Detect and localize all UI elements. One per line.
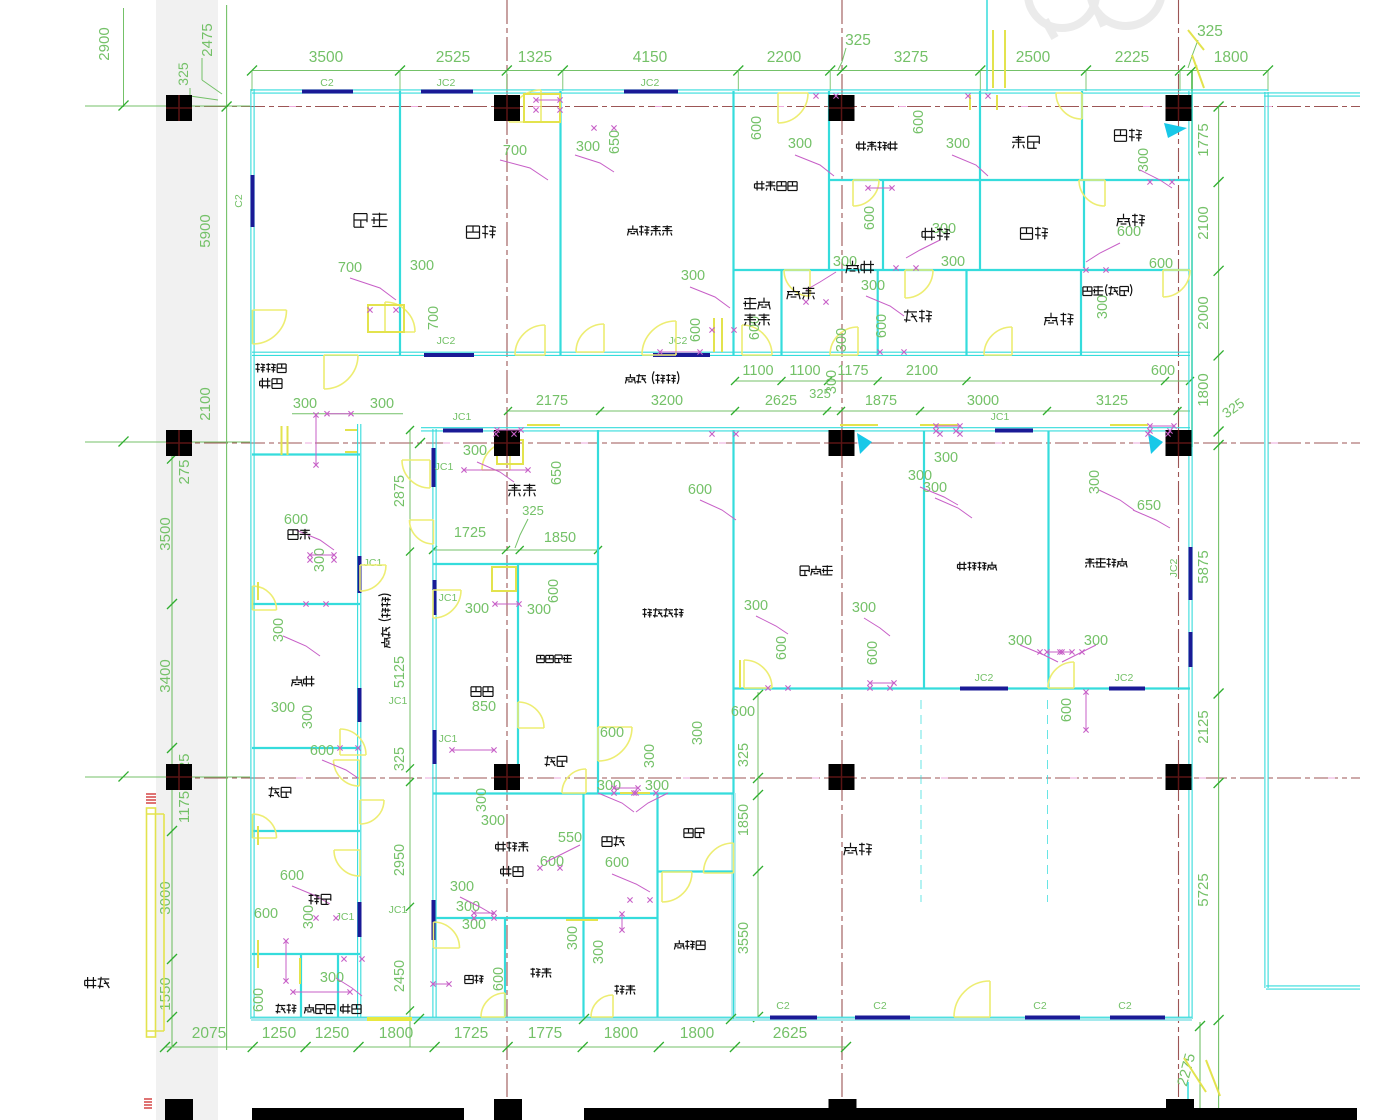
svg-text:1775: 1775 xyxy=(1195,123,1212,156)
svg-text:300: 300 xyxy=(450,879,474,895)
svg-text:1550: 1550 xyxy=(157,977,174,1010)
svg-text:2125: 2125 xyxy=(1195,710,1212,743)
svg-text:1325: 1325 xyxy=(518,49,552,66)
svg-text:300: 300 xyxy=(565,926,581,950)
svg-text:600: 600 xyxy=(749,116,765,140)
svg-text:1800: 1800 xyxy=(604,1025,639,1042)
svg-text:1800: 1800 xyxy=(1214,49,1249,66)
svg-text:2100: 2100 xyxy=(1195,206,1212,239)
svg-text:600: 600 xyxy=(546,579,562,603)
svg-text:1850: 1850 xyxy=(736,804,752,836)
svg-text:300: 300 xyxy=(941,254,965,270)
svg-text:C2: C2 xyxy=(233,194,245,208)
svg-text:300: 300 xyxy=(312,548,328,572)
svg-text:300: 300 xyxy=(744,598,768,614)
svg-text:JC2: JC2 xyxy=(641,77,660,89)
svg-text:3500: 3500 xyxy=(309,49,344,66)
svg-text:2625: 2625 xyxy=(765,393,797,409)
svg-text:600: 600 xyxy=(688,318,704,342)
svg-text:300: 300 xyxy=(370,396,394,412)
svg-text:5725: 5725 xyxy=(1195,873,1212,906)
svg-text:300: 300 xyxy=(462,917,486,933)
svg-text:300: 300 xyxy=(527,602,551,618)
svg-text:1725: 1725 xyxy=(454,525,486,541)
svg-text:JC2: JC2 xyxy=(1115,672,1134,684)
svg-text:325: 325 xyxy=(845,32,871,49)
svg-text:1725: 1725 xyxy=(454,1025,488,1042)
svg-text:JC1: JC1 xyxy=(453,411,472,423)
svg-text:300: 300 xyxy=(852,600,876,616)
svg-text:300: 300 xyxy=(946,136,970,152)
svg-text:1800: 1800 xyxy=(1195,373,1212,406)
svg-text:300: 300 xyxy=(271,618,287,642)
svg-text:300: 300 xyxy=(1084,633,1108,649)
svg-text:700: 700 xyxy=(426,306,442,330)
svg-text:600: 600 xyxy=(254,906,278,922)
svg-text:325: 325 xyxy=(1197,23,1223,40)
svg-text:C2: C2 xyxy=(1033,1000,1047,1012)
svg-text:2475: 2475 xyxy=(199,23,216,56)
svg-text:600: 600 xyxy=(688,482,712,498)
svg-text:300: 300 xyxy=(1095,295,1111,319)
svg-text:JC2: JC2 xyxy=(1168,559,1180,578)
svg-text:2450: 2450 xyxy=(392,960,408,992)
svg-text:600: 600 xyxy=(1149,256,1173,272)
svg-text:300: 300 xyxy=(642,744,658,768)
svg-text:JC1: JC1 xyxy=(389,695,408,707)
svg-text:300: 300 xyxy=(293,396,317,412)
svg-text:JC1: JC1 xyxy=(991,411,1010,423)
svg-text:600: 600 xyxy=(874,314,890,338)
svg-text:850: 850 xyxy=(472,699,496,715)
svg-text:300: 300 xyxy=(474,788,490,812)
svg-text:2875: 2875 xyxy=(392,475,408,507)
svg-text:300: 300 xyxy=(597,778,621,794)
svg-text:2525: 2525 xyxy=(436,49,470,66)
svg-text:300: 300 xyxy=(932,221,956,237)
svg-text:JC2: JC2 xyxy=(975,672,994,684)
svg-text:1850: 1850 xyxy=(544,530,576,546)
svg-text:1175: 1175 xyxy=(176,791,193,823)
svg-text:1100: 1100 xyxy=(789,363,820,379)
svg-text:300: 300 xyxy=(410,258,434,274)
svg-text:1800: 1800 xyxy=(680,1025,715,1042)
svg-text:JC1: JC1 xyxy=(439,733,458,745)
svg-text:300: 300 xyxy=(824,370,840,394)
svg-text:3275: 3275 xyxy=(894,49,928,66)
svg-text:2625: 2625 xyxy=(773,1025,807,1042)
svg-text:5900: 5900 xyxy=(197,214,214,247)
svg-text:2100: 2100 xyxy=(197,387,214,420)
svg-text:325: 325 xyxy=(736,743,752,767)
svg-text:C2: C2 xyxy=(1118,1000,1132,1012)
svg-text:600: 600 xyxy=(731,704,755,720)
svg-text:300: 300 xyxy=(908,468,932,484)
svg-text:300: 300 xyxy=(1136,148,1152,172)
svg-text:275: 275 xyxy=(176,459,193,484)
svg-text:600: 600 xyxy=(911,110,927,134)
svg-text:600: 600 xyxy=(1151,363,1175,379)
svg-text:JC1: JC1 xyxy=(439,592,458,604)
svg-text:JC1: JC1 xyxy=(336,911,355,923)
svg-text:300: 300 xyxy=(591,940,607,964)
svg-text:300: 300 xyxy=(934,450,958,466)
svg-text:JC2: JC2 xyxy=(437,335,456,347)
svg-text:JC2: JC2 xyxy=(437,77,456,89)
svg-text:2225: 2225 xyxy=(1115,49,1149,66)
svg-text:300: 300 xyxy=(463,443,487,459)
svg-text:300: 300 xyxy=(465,601,489,617)
svg-text:300: 300 xyxy=(861,278,885,294)
svg-text:325: 325 xyxy=(522,503,544,518)
svg-text:300: 300 xyxy=(788,136,812,152)
svg-text:300: 300 xyxy=(1008,633,1032,649)
svg-text:2200: 2200 xyxy=(767,49,802,66)
svg-text:2950: 2950 xyxy=(392,844,408,876)
svg-text:3200: 3200 xyxy=(651,393,683,409)
svg-text:3550: 3550 xyxy=(736,922,752,954)
svg-text:C2: C2 xyxy=(873,1000,887,1012)
svg-text:JC1: JC1 xyxy=(364,557,383,569)
svg-text:JC1: JC1 xyxy=(435,461,454,473)
svg-text:650: 650 xyxy=(549,461,565,485)
svg-text:1800: 1800 xyxy=(379,1025,414,1042)
svg-text:4150: 4150 xyxy=(633,49,668,66)
svg-text:300: 300 xyxy=(690,721,706,745)
svg-text:3400: 3400 xyxy=(157,659,174,692)
svg-text:600: 600 xyxy=(251,988,267,1012)
svg-text:600: 600 xyxy=(600,725,624,741)
svg-text:3000: 3000 xyxy=(967,393,999,409)
svg-text:1250: 1250 xyxy=(262,1025,297,1042)
svg-text:300: 300 xyxy=(320,970,344,986)
svg-text:JC1: JC1 xyxy=(389,904,408,916)
svg-text:2100: 2100 xyxy=(906,363,938,379)
svg-text:325: 325 xyxy=(392,747,408,771)
svg-text:650: 650 xyxy=(607,130,623,154)
svg-text:700: 700 xyxy=(503,143,527,159)
svg-text:600: 600 xyxy=(491,967,507,991)
svg-text:C2: C2 xyxy=(320,77,334,89)
svg-text:300: 300 xyxy=(834,328,850,352)
svg-text:300: 300 xyxy=(833,254,857,270)
svg-text:550: 550 xyxy=(558,830,582,846)
svg-text:300: 300 xyxy=(576,139,600,155)
svg-text:600: 600 xyxy=(280,868,304,884)
svg-text:2500: 2500 xyxy=(1016,49,1051,66)
svg-text:300: 300 xyxy=(271,700,295,716)
svg-text:2175: 2175 xyxy=(536,393,568,409)
svg-text:600: 600 xyxy=(774,636,790,660)
svg-text:C2: C2 xyxy=(776,1000,790,1012)
svg-text:300: 300 xyxy=(681,268,705,284)
svg-text:600: 600 xyxy=(605,855,629,871)
svg-text:600: 600 xyxy=(310,743,334,759)
svg-text:600: 600 xyxy=(865,641,881,665)
svg-text:3500: 3500 xyxy=(157,517,174,550)
svg-text:3000: 3000 xyxy=(157,881,174,914)
svg-text:2075: 2075 xyxy=(192,1025,226,1042)
svg-text:300: 300 xyxy=(481,813,505,829)
svg-text:1875: 1875 xyxy=(865,393,897,409)
svg-text:2000: 2000 xyxy=(1195,296,1212,329)
svg-text:5875: 5875 xyxy=(1195,550,1212,583)
svg-text:325: 325 xyxy=(175,62,191,86)
svg-text:JC2: JC2 xyxy=(669,335,688,347)
svg-text:650: 650 xyxy=(1137,498,1161,514)
svg-text:2900: 2900 xyxy=(96,27,113,60)
svg-text:600: 600 xyxy=(1117,224,1141,240)
svg-text:1250: 1250 xyxy=(315,1025,350,1042)
svg-text:1100: 1100 xyxy=(742,363,773,379)
svg-text:1775: 1775 xyxy=(528,1025,562,1042)
svg-text:3125: 3125 xyxy=(1096,393,1128,409)
svg-text:600: 600 xyxy=(284,512,308,528)
svg-text:600: 600 xyxy=(1059,698,1075,722)
svg-text:700: 700 xyxy=(338,260,362,276)
svg-text:1175: 1175 xyxy=(837,363,868,379)
svg-text:5125: 5125 xyxy=(392,656,408,688)
svg-text:600: 600 xyxy=(862,206,878,230)
svg-text:300: 300 xyxy=(300,705,316,729)
